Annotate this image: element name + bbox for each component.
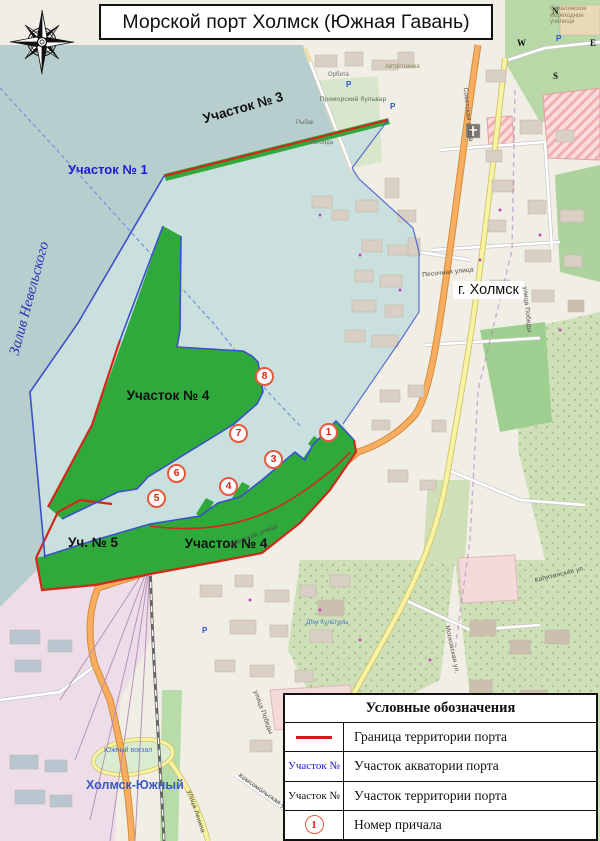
berth-marker-6: 6 xyxy=(167,464,186,483)
compass-w-label: W xyxy=(517,38,526,48)
legend-row-berth: 1 Номер причала xyxy=(285,811,596,839)
legend-label-territory: Участок территории порта xyxy=(344,782,596,810)
legend-label-aquatory: Участок акватории порта xyxy=(344,752,596,780)
map-title-text: Морской порт Холмск (Южная Гавань) xyxy=(122,11,469,34)
legend-row-border: Граница территории порта xyxy=(285,723,596,752)
red-line-icon xyxy=(296,736,332,739)
legend-row-aquatory: Участок № Участок акватории порта xyxy=(285,752,596,781)
legend-symbol-redline xyxy=(285,723,344,751)
berth-circle-icon: 1 xyxy=(305,815,324,834)
compass-n-label: N xyxy=(552,6,559,16)
berth-marker-4: 4 xyxy=(219,477,238,496)
legend-title: Условные обозначения xyxy=(285,695,596,723)
map-title: Морской порт Холмск (Южная Гавань) xyxy=(99,4,493,40)
compass-rose xyxy=(0,0,84,84)
legend-symbol-aquatory: Участок № xyxy=(285,752,344,780)
berth-marker-1: 1 xyxy=(319,423,338,442)
berth-marker-8: 8 xyxy=(255,367,274,386)
legend-symbol-berth: 1 xyxy=(285,811,344,839)
berth-marker-3: 3 xyxy=(264,450,283,469)
map-screenshot: N S E W Залив Невельского Участок № 1 Уч… xyxy=(0,0,600,841)
berth-marker-7: 7 xyxy=(229,424,248,443)
legend-label-border: Граница территории порта xyxy=(344,723,596,751)
legend-box: Условные обозначения Граница территории … xyxy=(283,693,598,841)
legend-label-berth: Номер причала xyxy=(344,811,596,839)
compass-s-label: S xyxy=(553,71,558,81)
legend-symbol-territory: Участок № xyxy=(285,782,344,810)
berth-marker-5: 5 xyxy=(147,489,166,508)
compass-e-label: E xyxy=(590,38,596,48)
legend-row-territory: Участок № Участок территории порта xyxy=(285,782,596,811)
